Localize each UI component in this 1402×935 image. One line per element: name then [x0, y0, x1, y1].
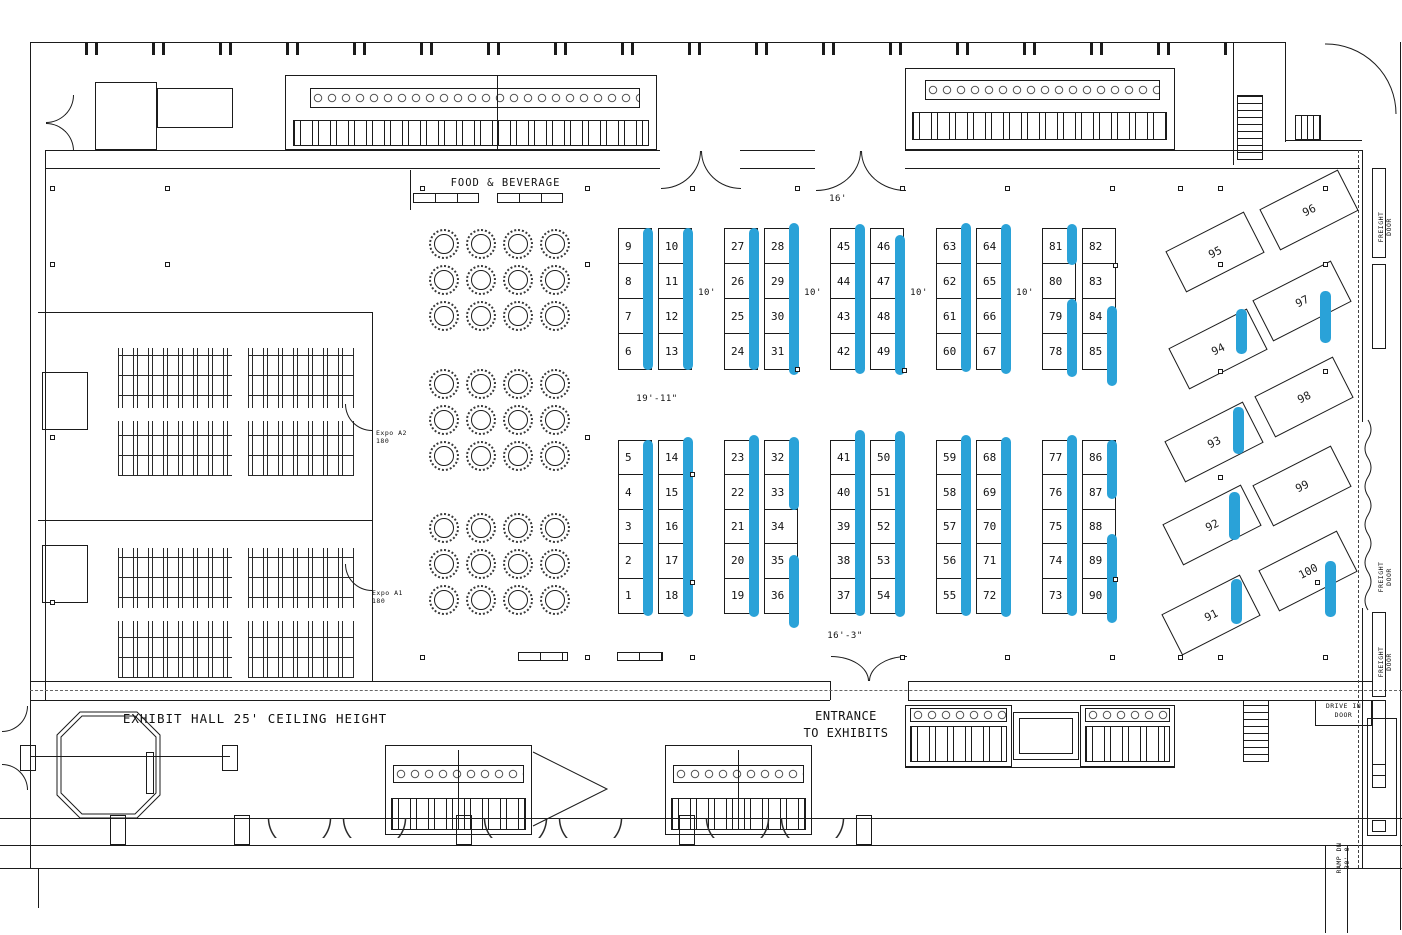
- column-marker: [420, 655, 425, 660]
- expo-a1-door-label: Expo A1 180: [372, 589, 416, 605]
- column-marker: [690, 580, 695, 585]
- booth-highlight: [643, 440, 653, 616]
- freight-door-label-3: FREIGHT DOOR: [1377, 632, 1393, 692]
- ramp-label: RAMP DN 30'-0: [1335, 823, 1351, 893]
- column-marker: [902, 368, 907, 373]
- column-marker: [420, 186, 425, 191]
- expo-a2-door-label: Expo A2 180: [376, 429, 420, 445]
- booth-highlight: [961, 223, 971, 372]
- column-marker: [1005, 186, 1010, 191]
- booth-highlight: [789, 437, 799, 510]
- freight-door-label-2: FREIGHT DOOR: [1377, 547, 1393, 607]
- dim-16ft: 16': [820, 194, 856, 204]
- ramp-line2: 30'-0: [1343, 823, 1351, 893]
- column-marker: [585, 186, 590, 191]
- dim-10ft-2: 10': [798, 288, 828, 298]
- booth-highlight: [1231, 579, 1242, 624]
- booth-highlight: [749, 228, 759, 370]
- floor-plan: FOOD & BEVERAGE 16' 10' 10' 10' 10' 19'-…: [0, 0, 1402, 935]
- booth-highlight: [683, 228, 693, 370]
- corner-door-arc: [1325, 44, 1396, 114]
- booth-highlight: [1067, 435, 1077, 616]
- column-marker: [1113, 577, 1118, 582]
- booth-highlight: [1001, 224, 1011, 373]
- column-marker: [585, 435, 590, 440]
- column-marker: [900, 655, 905, 660]
- dim-10ft-1: 10': [692, 288, 722, 298]
- expo-a1-line1: Expo A1: [372, 589, 416, 597]
- entrance-line1: ENTRANCE: [790, 708, 902, 725]
- booth-highlight: [749, 435, 759, 618]
- booth-highlight: [895, 235, 905, 375]
- booth-highlight: [855, 430, 865, 616]
- octagon-room-inner: [61, 716, 156, 814]
- vestibule-chevron: [533, 752, 607, 826]
- column-marker: [585, 655, 590, 660]
- column-marker: [690, 472, 695, 477]
- column-marker: [50, 600, 55, 605]
- column-marker: [50, 435, 55, 440]
- column-marker: [1178, 655, 1183, 660]
- column-marker: [1218, 186, 1223, 191]
- booth-highlight: [1236, 309, 1247, 354]
- column-marker: [1218, 655, 1223, 660]
- freight-3-line2: DOOR: [1385, 632, 1393, 692]
- dim-10ft-4: 10': [1010, 288, 1040, 298]
- column-marker: [690, 186, 695, 191]
- column-marker: [1110, 186, 1115, 191]
- column-marker: [1323, 655, 1328, 660]
- dim-16-3: 16'-3": [815, 631, 875, 641]
- exhibit-hall-label: EXHIBIT HALL 25' CEILING HEIGHT: [105, 711, 405, 726]
- freight-door-label-1: FREIGHT DOOR: [1377, 197, 1393, 257]
- entrance-line2: TO EXHIBITS: [790, 725, 902, 742]
- column-marker: [165, 262, 170, 267]
- column-marker: [1113, 263, 1118, 268]
- column-marker: [50, 186, 55, 191]
- expo-a1-line2: 180: [372, 597, 416, 605]
- food-beverage-label: FOOD & BEVERAGE: [428, 177, 583, 189]
- freight-1-line1: FREIGHT: [1377, 197, 1385, 257]
- ramp-line1: RAMP DN: [1335, 823, 1343, 893]
- booth-highlight: [789, 223, 799, 376]
- column-marker: [1323, 186, 1328, 191]
- freight-2-line2: DOOR: [1385, 547, 1393, 607]
- booth-highlight: [1107, 306, 1117, 386]
- dim-10ft-3: 10': [904, 288, 934, 298]
- column-marker: [585, 262, 590, 267]
- booth-highlight: [961, 435, 971, 616]
- booth-highlight: [1229, 492, 1240, 540]
- booth-34[interactable]: 34: [765, 510, 797, 544]
- drive-in-line2: DOOR: [1316, 711, 1371, 720]
- column-marker: [1323, 369, 1328, 374]
- column-marker: [795, 186, 800, 191]
- freight-curtain-wave: [1365, 420, 1371, 610]
- booth-highlight: [643, 228, 653, 370]
- column-marker: [1218, 369, 1223, 374]
- booth-82[interactable]: 82: [1083, 229, 1115, 264]
- booth-highlight: [895, 431, 905, 617]
- column-marker: [900, 186, 905, 191]
- booth-highlight: [1325, 561, 1336, 617]
- booth-highlight: [789, 555, 799, 628]
- freight-1-line2: DOOR: [1385, 197, 1393, 257]
- booth-highlight: [1320, 291, 1331, 343]
- entrance-label: ENTRANCE TO EXHIBITS: [790, 708, 902, 742]
- freight-3-line1: FREIGHT: [1377, 632, 1385, 692]
- column-marker: [1323, 262, 1328, 267]
- booth-highlight: [1233, 407, 1244, 454]
- column-marker: [1315, 580, 1320, 585]
- column-marker: [165, 186, 170, 191]
- column-marker: [1005, 655, 1010, 660]
- column-marker: [795, 367, 800, 372]
- booth-highlight: [855, 224, 865, 373]
- column-marker: [50, 262, 55, 267]
- column-marker: [1110, 655, 1115, 660]
- drive-in-line1: DRIVE IN: [1316, 702, 1371, 711]
- column-marker: [1178, 186, 1183, 191]
- column-marker: [690, 655, 695, 660]
- booth-highlight: [1001, 437, 1011, 618]
- expo-a2-line1: Expo A2: [376, 429, 420, 437]
- booth-highlight: [1067, 224, 1077, 265]
- freight-2-line1: FREIGHT: [1377, 547, 1385, 607]
- booth-highlight: [1107, 440, 1117, 499]
- column-marker: [1218, 475, 1223, 480]
- booth-83[interactable]: 83: [1083, 264, 1115, 299]
- octagon-room: [57, 712, 160, 818]
- booth-highlight: [683, 437, 693, 618]
- expo-a2-line2: 180: [376, 437, 420, 445]
- dim-19-11: 19'-11": [625, 394, 689, 404]
- booth-80[interactable]: 80: [1043, 264, 1075, 299]
- column-marker: [1218, 262, 1223, 267]
- booth-highlight: [1067, 299, 1077, 377]
- drive-in-door-label: DRIVE IN DOOR: [1316, 702, 1371, 720]
